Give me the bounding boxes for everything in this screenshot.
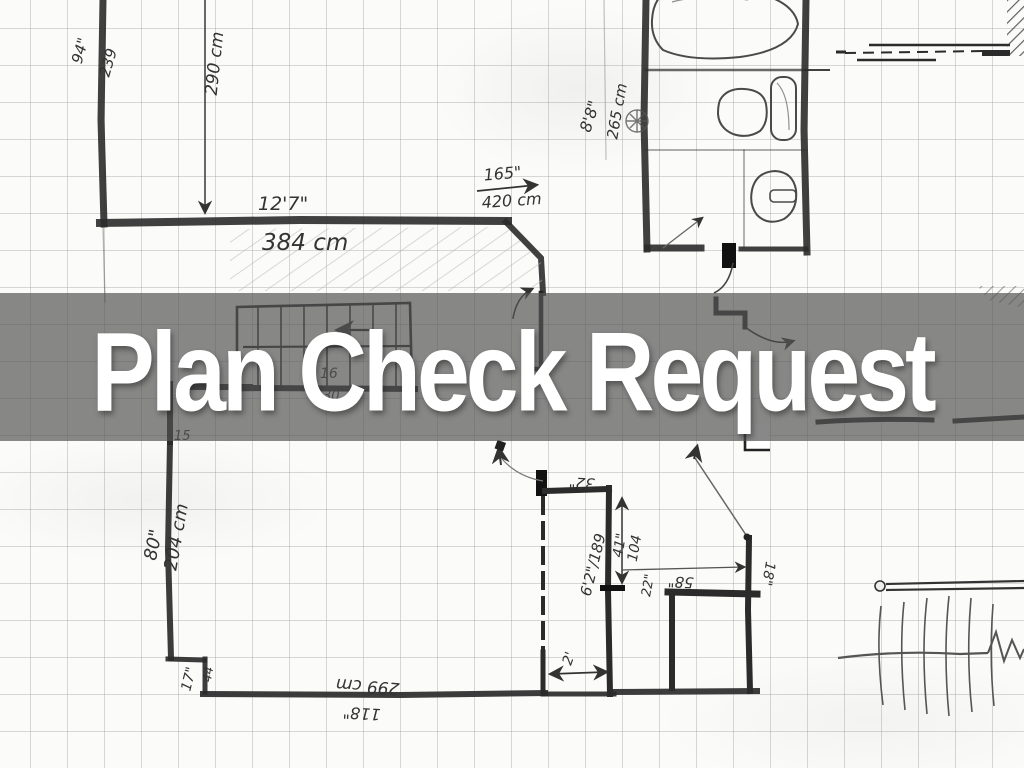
stairs-lower: [838, 596, 1024, 716]
landing-walls: [668, 538, 757, 691]
bathroom-walls: [644, 0, 829, 252]
dim-22in: 22": [639, 573, 658, 598]
dim-420cm: 420 cm: [481, 189, 542, 212]
dim-8ft8: 8'8": [576, 98, 604, 134]
dim-384cm: 384 cm: [262, 230, 348, 256]
dim-94in: 94": [68, 36, 92, 66]
dim-204cm: 204 cm: [160, 502, 192, 572]
dim-32in: 32": [568, 473, 595, 492]
door-hinge-block: [722, 243, 736, 268]
dim-12ft7: 12'7": [258, 193, 308, 215]
dim-44: 44: [200, 666, 216, 683]
sink-icon: [751, 171, 796, 222]
dim-118in: 118": [342, 703, 381, 724]
toilet-icon: [718, 77, 796, 140]
dim-104: 104: [625, 534, 645, 563]
landing-door-leaf: [694, 447, 751, 541]
dim-18in: 18": [758, 560, 778, 587]
dim-265cm: 265 cm: [603, 82, 630, 141]
dim-2ft: 2': [560, 650, 579, 667]
dim-299cm: 299 cm: [335, 674, 400, 698]
closet-door-swing: [495, 440, 543, 481]
slide-title: Plan Check Request: [91, 297, 932, 437]
handrail: [875, 581, 1024, 591]
title-banner: Plan Check Request: [0, 293, 1024, 441]
slide: 94" 239 290 cm 12'7" 384 cm 165" 420 cm: [0, 0, 1024, 768]
dim-165in: 165": [483, 162, 522, 184]
light-fixture-icon: [626, 110, 648, 132]
window-symbol: [836, 45, 1010, 60]
dim-17in: 17": [178, 665, 199, 692]
bathtub-icon: [652, 0, 798, 58]
wall-section-hatch: [1007, 0, 1024, 56]
